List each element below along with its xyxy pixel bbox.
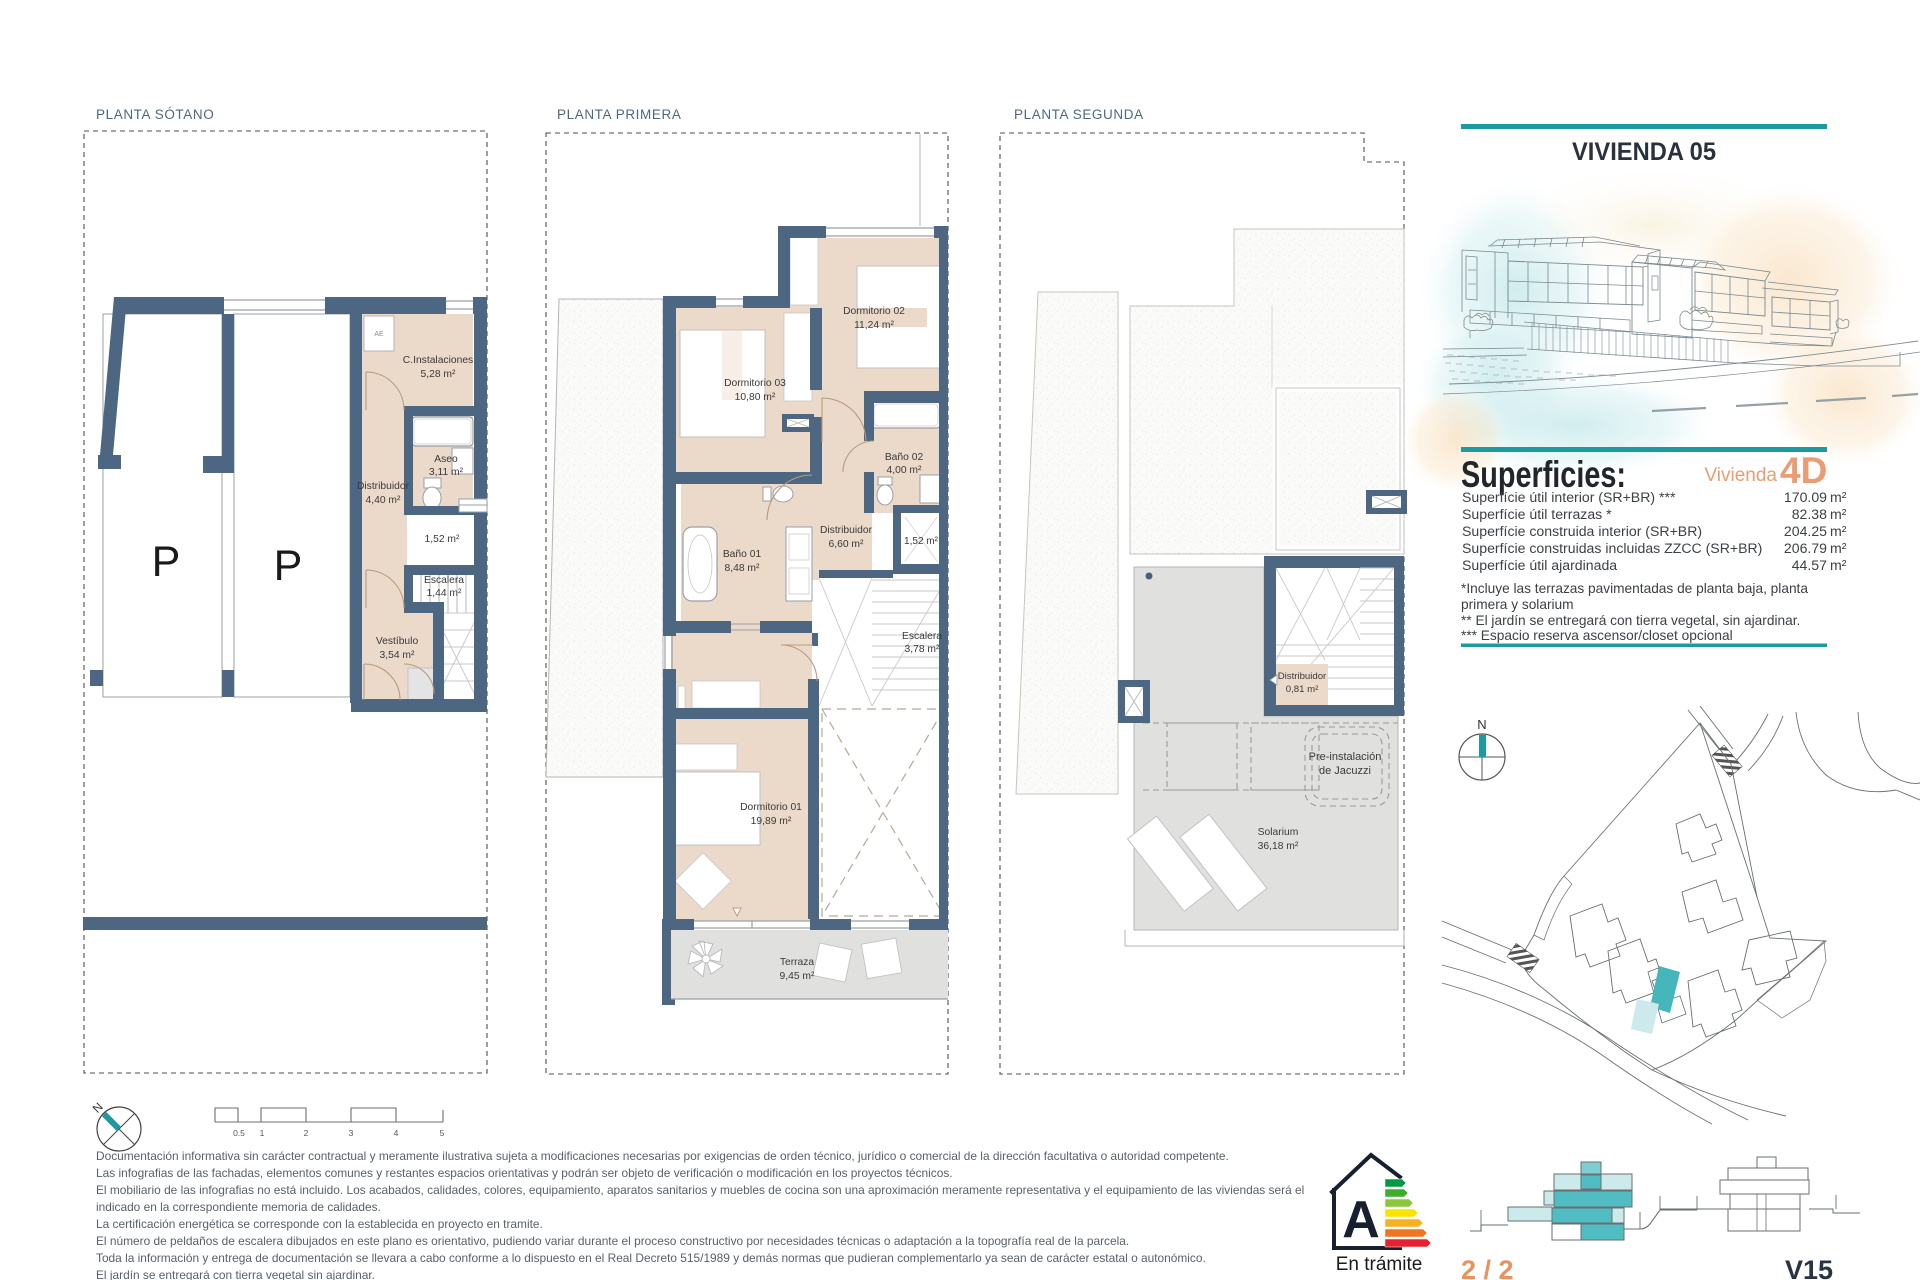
svg-text:AE: AE <box>374 331 384 338</box>
svg-text:206.79: 206.79 <box>1784 540 1827 556</box>
svg-text:3,11 m²: 3,11 m² <box>429 467 464 478</box>
svg-text:170.09: 170.09 <box>1784 489 1827 505</box>
svg-text:8,48 m²: 8,48 m² <box>725 563 760 574</box>
svg-text:Dormitorio 01: Dormitorio 01 <box>740 802 802 813</box>
svg-text:P: P <box>274 542 303 590</box>
svg-text:Baño 02: Baño 02 <box>885 452 924 463</box>
svg-text:Las infografias de las fachada: Las infografias de las fachadas, element… <box>96 1166 953 1180</box>
svg-text:Solarium: Solarium <box>1258 827 1299 838</box>
svg-text:Toda la información y entrega: Toda la información y entrega de documen… <box>96 1251 1206 1265</box>
svg-text:Superfície construida interior: Superfície construida interior (SR+BR) <box>1462 523 1702 539</box>
svg-text:PLANTA PRIMERA: PLANTA PRIMERA <box>557 107 681 122</box>
svg-text:Vestíbulo: Vestíbulo <box>376 636 419 647</box>
svg-text:Pre-instalación: Pre-instalación <box>1309 751 1382 763</box>
svg-text:Superfície útil terrazas *: Superfície útil terrazas * <box>1462 506 1612 522</box>
svg-text:El jardín se entregará con tie: El jardín se entregará con tierra vegeta… <box>96 1268 375 1280</box>
svg-text:5: 5 <box>440 1128 445 1138</box>
svg-text:1,44 m²: 1,44 m² <box>427 588 462 599</box>
svg-text:Vivienda: Vivienda <box>1704 465 1777 486</box>
svg-text:C.Instalaciones: C.Instalaciones <box>403 355 473 366</box>
svg-text:indicado en la correspondiente: indicado en la correspondiente memoria d… <box>96 1200 381 1214</box>
svg-text:V15: V15 <box>1785 1255 1833 1280</box>
svg-text:204.25: 204.25 <box>1784 523 1827 539</box>
svg-text:82.38: 82.38 <box>1792 506 1827 522</box>
svg-text:0.5: 0.5 <box>233 1128 245 1138</box>
svg-text:** El jardín se entregará con: ** El jardín se entregará con tierra veg… <box>1461 613 1800 628</box>
svg-text:Distribuidor: Distribuidor <box>357 481 410 492</box>
svg-text:1: 1 <box>260 1128 265 1138</box>
svg-text:Superfície útil ajardinada: Superfície útil ajardinada <box>1462 557 1617 573</box>
svg-text:Terraza: Terraza <box>780 957 815 968</box>
svg-text:m²: m² <box>1830 489 1847 505</box>
svg-text:Distribuidor: Distribuidor <box>820 525 873 536</box>
svg-text:Documentación informativa sin: Documentación informativa sin carácter c… <box>96 1149 1229 1163</box>
svg-text:4,00 m²: 4,00 m² <box>887 465 922 476</box>
svg-text:m²: m² <box>1830 557 1847 573</box>
svg-text:11,24 m²: 11,24 m² <box>854 320 894 331</box>
svg-text:N: N <box>1477 717 1486 732</box>
svg-text:PLANTA SEGUNDA: PLANTA SEGUNDA <box>1014 107 1144 122</box>
svg-text:m²: m² <box>1830 506 1847 522</box>
svg-text:A: A <box>1342 1191 1380 1249</box>
svg-text:m²: m² <box>1830 523 1847 539</box>
svg-text:Distribuidor: Distribuidor <box>1278 671 1327 682</box>
svg-text:3: 3 <box>349 1128 354 1138</box>
svg-text:4D: 4D <box>1780 450 1827 491</box>
svg-text:10,80 m²: 10,80 m² <box>735 392 776 403</box>
svg-text:*** Espacio reserva ascensor/c: *** Espacio reserva ascensor/closet opci… <box>1461 628 1733 643</box>
svg-text:1,52 m²: 1,52 m² <box>904 536 939 547</box>
svg-text:m²: m² <box>1830 540 1847 556</box>
svg-text:0,81 m²: 0,81 m² <box>1286 684 1319 695</box>
svg-text:36,18 m²: 36,18 m² <box>1258 841 1299 852</box>
svg-text:Dormitorio 02: Dormitorio 02 <box>843 306 905 317</box>
svg-text:4,40 m²: 4,40 m² <box>366 495 401 506</box>
svg-text:de Jacuzzi: de Jacuzzi <box>1319 765 1371 777</box>
svg-text:Superfície útil interior (SR+B: Superfície útil interior (SR+BR) *** <box>1462 489 1676 505</box>
svg-text:5,28 m²: 5,28 m² <box>421 369 456 380</box>
svg-text:3,78 m²: 3,78 m² <box>905 644 940 655</box>
svg-text:1,52 m²: 1,52 m² <box>425 534 460 545</box>
svg-text:44.57: 44.57 <box>1792 557 1827 573</box>
svg-text:*Incluye las terrazas paviment: *Incluye las terrazas pavimentadas de pl… <box>1461 581 1808 596</box>
svg-text:6,60 m²: 6,60 m² <box>829 539 864 550</box>
svg-text:Baño 01: Baño 01 <box>723 549 762 560</box>
svg-text:4: 4 <box>394 1128 399 1138</box>
svg-text:La certificación energética se: La certificación energética se correspon… <box>96 1217 543 1231</box>
svg-text:Superfície construidas incluid: Superfície construidas incluidas ZZCC (S… <box>1462 540 1762 556</box>
svg-text:Escalera: Escalera <box>902 631 942 642</box>
svg-text:primera y solarium: primera y solarium <box>1461 597 1574 612</box>
svg-text:P: P <box>152 538 181 586</box>
svg-text:Dormitorio 03: Dormitorio 03 <box>724 378 786 389</box>
svg-text:En trámite: En trámite <box>1336 1254 1423 1275</box>
svg-text:Aseo: Aseo <box>434 454 458 465</box>
svg-text:El mobiliario de las infografi: El mobiliario de las infografias no está… <box>96 1183 1304 1197</box>
svg-text:19,89 m²: 19,89 m² <box>751 816 792 827</box>
svg-text:El número de peldaños de escal: El número de peldaños de escalera dibuja… <box>96 1234 1129 1248</box>
svg-text:3,54 m²: 3,54 m² <box>380 650 415 661</box>
svg-text:9,45 m²: 9,45 m² <box>780 971 815 982</box>
svg-text:Escalera: Escalera <box>424 575 464 586</box>
svg-text:2 / 2: 2 / 2 <box>1461 1255 1514 1280</box>
svg-text:2: 2 <box>304 1128 309 1138</box>
svg-text:PLANTA SÓTANO: PLANTA SÓTANO <box>96 107 214 122</box>
